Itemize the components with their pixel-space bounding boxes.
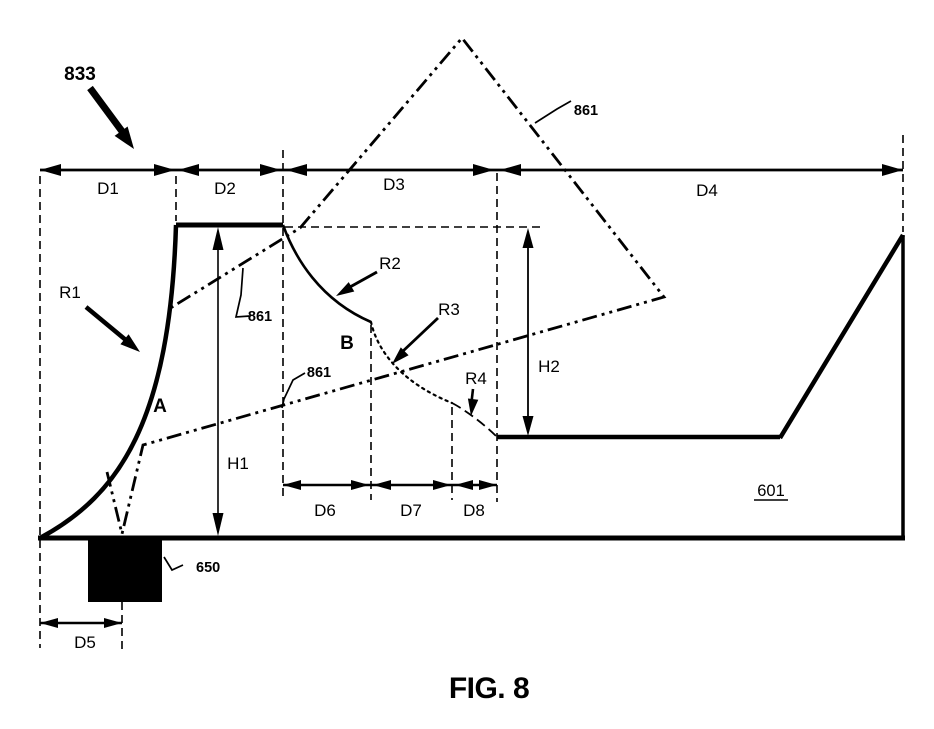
arrowhead bbox=[455, 480, 473, 490]
curve-r2 bbox=[283, 225, 371, 322]
label-r3: R3 bbox=[438, 300, 460, 319]
label-d6: D6 bbox=[314, 501, 336, 520]
figure-canvas: D1 D2 D3 D4 D6 D7 D8 D5 H1 H2 bbox=[0, 0, 934, 729]
label-d7: D7 bbox=[400, 501, 422, 520]
curve-r1 bbox=[40, 225, 176, 538]
label-650: 650 bbox=[196, 560, 220, 576]
arrowhead bbox=[882, 164, 903, 176]
arrowhead bbox=[433, 480, 451, 490]
label-h1: H1 bbox=[227, 454, 249, 473]
label-601: 601 bbox=[757, 482, 785, 500]
figure-caption: FIG. 8 bbox=[449, 672, 529, 705]
arrowhead bbox=[154, 164, 175, 176]
label-861-low: 861 bbox=[307, 365, 331, 381]
label-d4: D4 bbox=[696, 181, 718, 200]
arrowhead bbox=[40, 164, 61, 176]
callout-861-low: 861 bbox=[282, 365, 331, 408]
callout-861-mid: 861 bbox=[236, 268, 272, 325]
arrowhead bbox=[286, 164, 307, 176]
dimension-row-middle: D6 D7 D8 bbox=[283, 480, 497, 520]
label-point-b: B bbox=[340, 333, 354, 354]
arrowhead bbox=[373, 480, 391, 490]
label-d1: D1 bbox=[97, 179, 119, 198]
callout-r1: R1 bbox=[59, 283, 140, 352]
arrowhead bbox=[178, 164, 199, 176]
r2-arrow-shaft bbox=[350, 272, 377, 287]
label-861-mid: 861 bbox=[248, 309, 272, 325]
label-r2: R2 bbox=[379, 254, 401, 273]
arrowhead bbox=[213, 227, 224, 250]
label-point-a: A bbox=[153, 396, 167, 417]
arrowhead bbox=[500, 164, 521, 176]
dimension-row-bottom: D5 bbox=[40, 618, 122, 652]
leader-861-low bbox=[282, 373, 305, 408]
arrowhead bbox=[523, 416, 534, 436]
callout-r3: R3 bbox=[392, 300, 460, 364]
curve-r3-dotted bbox=[371, 322, 452, 403]
label-833: 833 bbox=[64, 64, 96, 85]
callout-601: 601 bbox=[754, 482, 788, 500]
arrowhead bbox=[260, 164, 281, 176]
label-d5: D5 bbox=[74, 633, 96, 652]
patent-figure-page: D1 D2 D3 D4 D6 D7 D8 D5 H1 H2 bbox=[0, 0, 934, 729]
arrowhead bbox=[479, 480, 497, 490]
r1-arrow-shaft bbox=[86, 307, 127, 341]
arrowhead bbox=[283, 480, 301, 490]
label-d2: D2 bbox=[214, 179, 236, 198]
pointer-833-shaft bbox=[90, 88, 124, 134]
arrowhead bbox=[473, 164, 494, 176]
r3-arrow-shaft bbox=[402, 318, 438, 352]
leader-650 bbox=[164, 557, 183, 570]
arrowhead bbox=[523, 228, 534, 248]
callout-r4: R4 bbox=[465, 369, 487, 416]
callout-861-top: 861 bbox=[535, 101, 598, 123]
callout-650: 650 bbox=[164, 557, 220, 576]
leader-861-top bbox=[535, 101, 571, 123]
insert-650-block bbox=[88, 538, 162, 602]
label-d8: D8 bbox=[463, 501, 485, 520]
arrowhead bbox=[351, 480, 369, 490]
callout-833: 833 bbox=[64, 64, 134, 149]
callout-r2: R2 bbox=[336, 254, 401, 296]
dimension-row-top: D1 D2 D3 D4 bbox=[40, 164, 903, 200]
arrowhead bbox=[336, 282, 354, 296]
label-r1: R1 bbox=[59, 283, 81, 302]
trailing-diagonal bbox=[780, 235, 903, 438]
arrowhead bbox=[213, 513, 224, 536]
arrowhead bbox=[104, 618, 122, 628]
label-d3: D3 bbox=[383, 175, 405, 194]
arrowhead bbox=[40, 618, 58, 628]
label-h2: H2 bbox=[538, 357, 560, 376]
label-r4: R4 bbox=[465, 369, 487, 388]
label-861-top: 861 bbox=[574, 103, 598, 119]
